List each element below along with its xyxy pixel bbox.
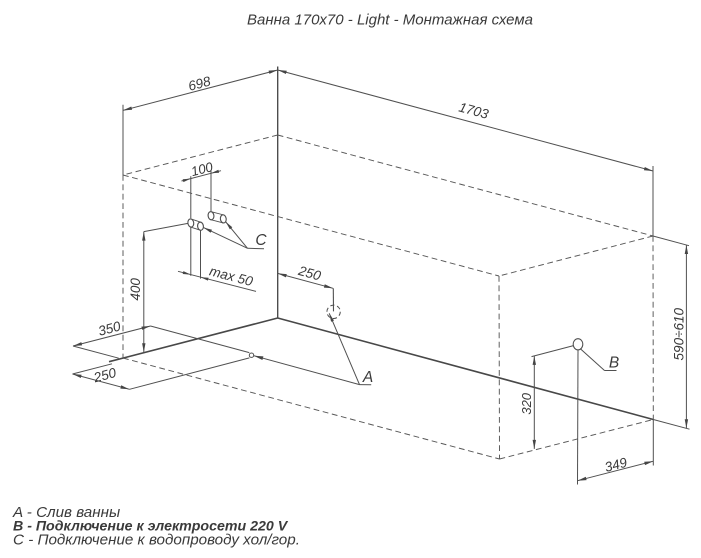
svg-text:C - Подключение к водопроводу: C - Подключение к водопроводу хол/гор.: [13, 532, 300, 549]
svg-text:Ванна 170x70 - Light - Монтажн: Ванна 170x70 - Light - Монтажная схема: [247, 12, 533, 29]
svg-text:B: B: [609, 354, 619, 371]
svg-text:A: A: [362, 369, 373, 386]
svg-text:590÷610: 590÷610: [672, 307, 687, 360]
svg-text:320: 320: [519, 392, 534, 414]
svg-text:400: 400: [128, 278, 143, 301]
svg-text:C: C: [255, 232, 267, 249]
